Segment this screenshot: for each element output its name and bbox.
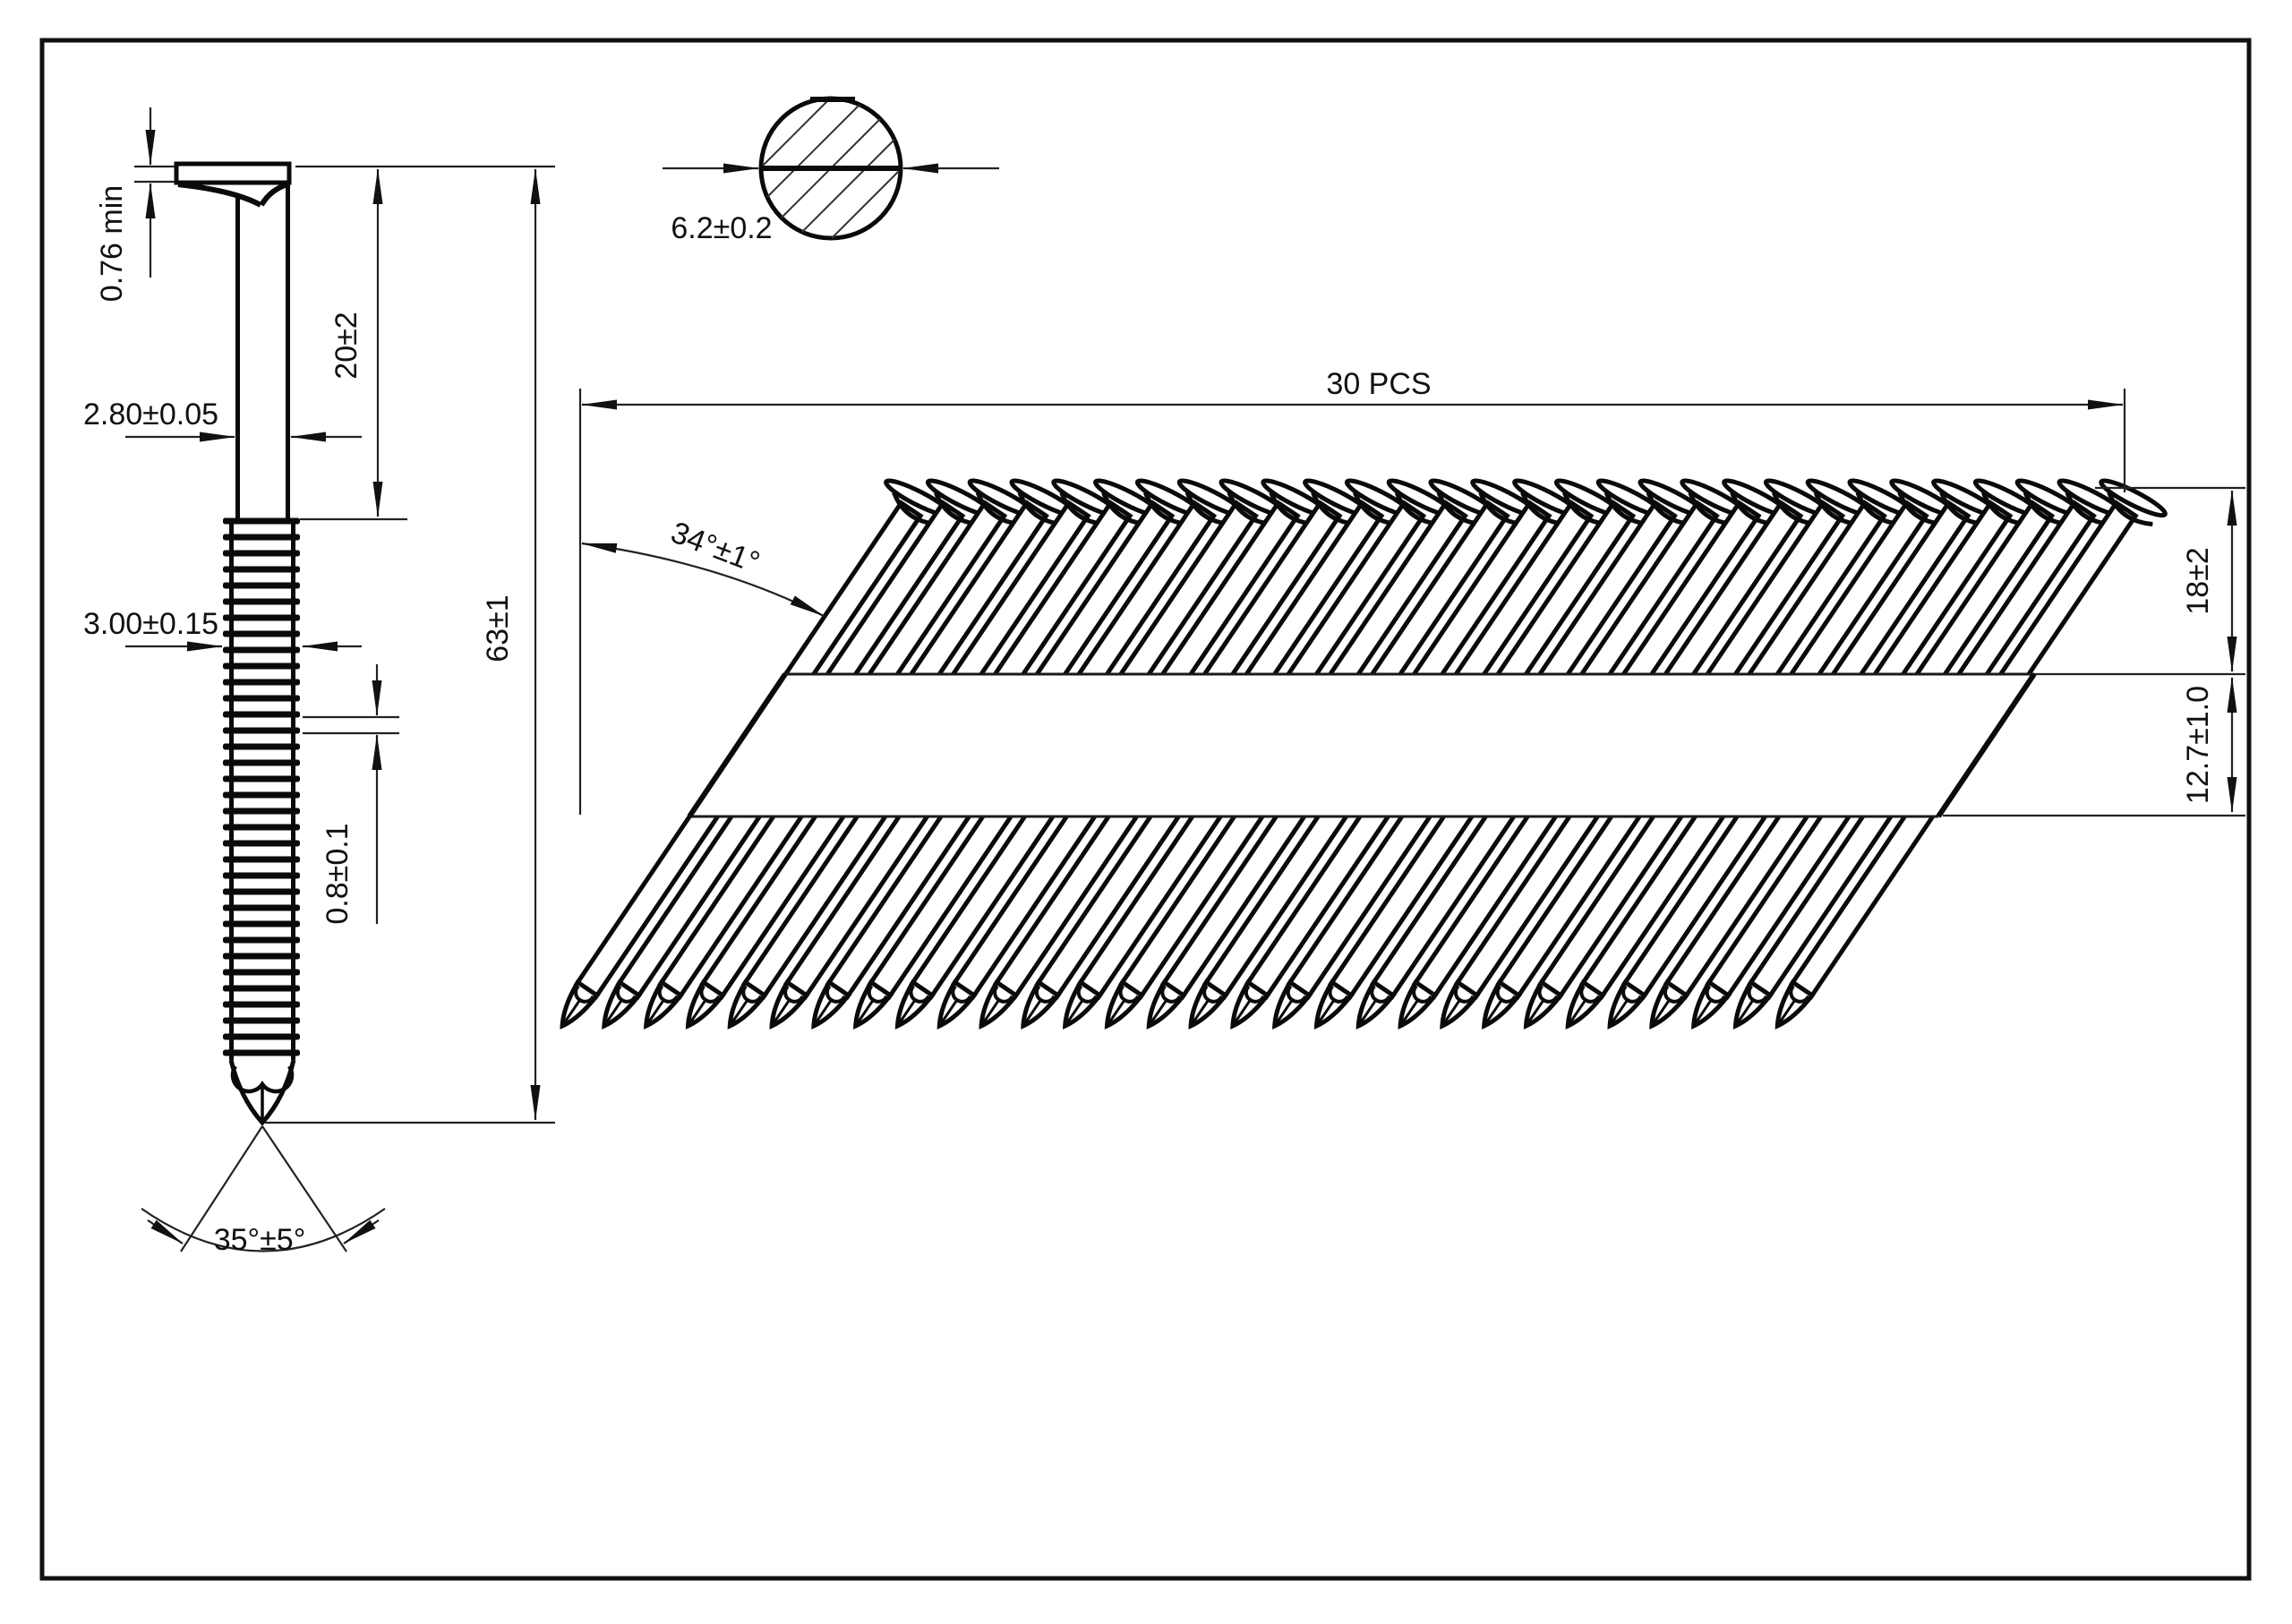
ring-crest bbox=[223, 857, 300, 863]
ring-crest bbox=[223, 921, 300, 927]
ring-crest bbox=[223, 905, 300, 911]
ring-crest bbox=[223, 760, 300, 766]
drawing-sheet: 0.76 min 20±2 2.80±0.05 3.00±0.15 0.8±0.… bbox=[0, 0, 2292, 1624]
nail-head bbox=[176, 164, 289, 183]
ring-crest bbox=[223, 663, 300, 670]
ring-crest bbox=[223, 970, 300, 976]
ring-crest bbox=[223, 776, 300, 782]
ring-crest bbox=[223, 567, 300, 573]
ring-crest bbox=[223, 953, 300, 960]
dim-point-angle: 35°±5° bbox=[214, 1223, 306, 1257]
ring-crest bbox=[223, 792, 300, 799]
dim-head-thickness: 0.76 min bbox=[95, 185, 129, 302]
dim-ring-dia: 3.00±0.15 bbox=[83, 607, 218, 641]
ring-crest bbox=[223, 583, 300, 589]
ring-shank-rings bbox=[223, 518, 300, 1056]
ring-crest bbox=[223, 518, 300, 525]
ring-crest bbox=[223, 986, 300, 992]
dim-strip-count: 30 PCS bbox=[1326, 367, 1431, 401]
ring-crest bbox=[223, 937, 300, 944]
ring-crest bbox=[223, 599, 300, 605]
ring-crest bbox=[223, 551, 300, 557]
ring-crest bbox=[223, 680, 300, 686]
dim-total-length: 63±1 bbox=[481, 594, 515, 662]
ring-crest bbox=[223, 1034, 300, 1040]
nail-side-view: 0.76 min 20±2 2.80±0.05 3.00±0.15 0.8±0.… bbox=[83, 107, 555, 1257]
ring-crest bbox=[223, 889, 300, 895]
dim-collation-angle: 34°±1° bbox=[666, 516, 764, 580]
dim-head-offset: 18±2 bbox=[2181, 547, 2215, 614]
ring-crest bbox=[223, 873, 300, 879]
ring-crest bbox=[223, 534, 300, 541]
ring-crest bbox=[223, 808, 300, 815]
ring-crest bbox=[223, 841, 300, 847]
dim-head-dia: 6.2±0.2 bbox=[671, 211, 772, 245]
collation-tape bbox=[689, 674, 2034, 816]
ring-crest bbox=[223, 631, 300, 637]
ring-crest bbox=[223, 1050, 300, 1056]
ring-crest bbox=[223, 1002, 300, 1008]
dim-tape-width: 12.7±1.0 bbox=[2181, 686, 2215, 804]
ring-crest bbox=[223, 696, 300, 702]
dim-smooth-length: 20±2 bbox=[329, 312, 363, 379]
ring-crest bbox=[223, 825, 300, 831]
ring-crest bbox=[223, 1018, 300, 1024]
head-fillet-left bbox=[178, 184, 261, 205]
ring-crest bbox=[223, 615, 300, 621]
drawing-canvas: 0.76 min 20±2 2.80±0.05 3.00±0.15 0.8±0.… bbox=[0, 0, 2292, 1624]
nail-strip-view: 30 PCS 34°±1° 18±2 12.7±1.0 bbox=[532, 367, 2245, 1046]
dim-ring-pitch: 0.8±0.1 bbox=[321, 823, 355, 924]
head-fillet-right bbox=[261, 184, 287, 205]
ring-crest bbox=[223, 647, 300, 654]
ring-crest bbox=[223, 728, 300, 734]
ring-crest bbox=[223, 744, 300, 750]
dim-shank-dia: 2.80±0.05 bbox=[83, 397, 218, 432]
ring-crest bbox=[223, 712, 300, 718]
head-section-view: 6.2±0.2 bbox=[663, 98, 999, 245]
